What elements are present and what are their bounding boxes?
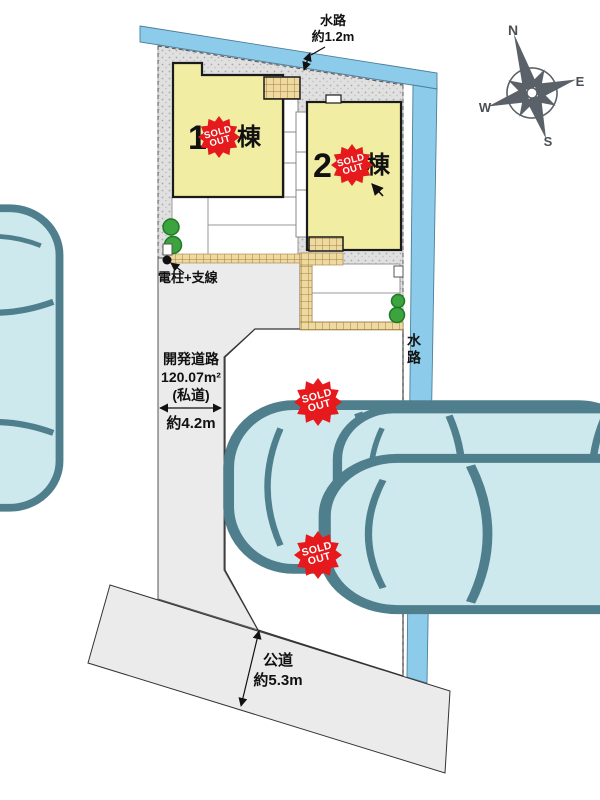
waterway-top-name: 水路 [301,13,365,29]
public-road-width: 約5.3m [242,671,314,691]
car-icon [0,208,60,508]
tree-icon [392,295,405,308]
waterway-top-width: 約1.2m [301,29,365,45]
compass-label-w: W [479,100,492,115]
waterway-right-label: 水路 [404,333,424,367]
house-2-porch [309,237,343,251]
compass-label-n: N [508,22,518,38]
development-road-width-label: 約4.2m [148,414,234,434]
unit-1-suffix: 棟 [237,126,261,150]
public-road-label: 公道 約5.3m [242,651,314,690]
compass-rose: N E S W [470,20,590,152]
public-road-name: 公道 [242,651,314,671]
parking-area-2 [300,253,600,610]
house-2-roof-notch [326,95,341,103]
sold-out-text: SOLD OUT [301,541,336,568]
utility-pole-label: 電柱+支線 [158,270,218,286]
development-road-label: 開発道路 120.07m² (私道) [148,350,234,405]
walkway-hatch [300,322,403,330]
site-plan: N E S W 水路 約1.2m 水路 電柱+支線 開発道路 120.07m² … [0,0,600,800]
sold-out-text: SOLD OUT [301,388,336,415]
utility-pole-icon [163,256,172,265]
sold-out-text: SOLD OUT [336,153,368,178]
utility-box [394,266,403,277]
development-road-area: 120.07m² [148,368,234,386]
development-road-type: (私道) [148,386,234,404]
waterway-top-label: 水路 約1.2m [301,13,365,46]
compass-label-s: S [544,134,553,149]
tree-icon [163,219,179,235]
car-icon [325,458,600,609]
compass-needle [470,20,590,152]
house-1-balcony [264,77,300,99]
compass-label-e: E [576,74,585,89]
house-2-eave [296,112,307,237]
unit-2-number: 2 [313,149,332,183]
development-road-name: 開発道路 [148,350,234,368]
utility-box [163,244,172,255]
tree-icon [390,308,405,323]
sold-out-text: SOLD OUT [203,125,235,150]
walkway-hatch [168,254,300,263]
walkway-hatch [300,253,343,265]
